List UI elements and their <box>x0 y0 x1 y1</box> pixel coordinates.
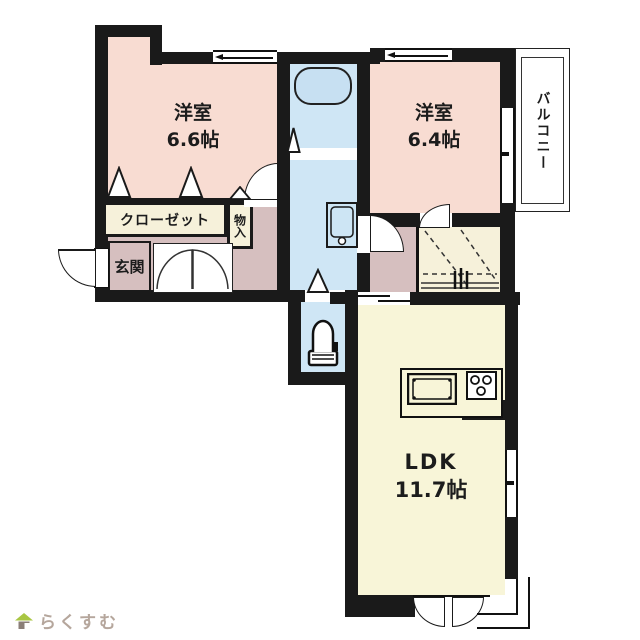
site-logo: らくすむ <box>14 608 119 633</box>
wall-segment <box>505 295 518 452</box>
entrance-door-panel <box>94 248 109 288</box>
terrace-threshold <box>413 595 490 597</box>
hallway-floor <box>253 205 277 237</box>
washbasin-icon <box>326 202 358 248</box>
wall-segment <box>345 290 358 617</box>
wall-segment <box>357 52 370 305</box>
entrance: 玄関 <box>108 241 151 292</box>
terrace-outline <box>477 613 518 615</box>
storage-door-mark-icon <box>228 186 252 201</box>
wall-segment <box>345 595 415 617</box>
storage: 物入 <box>227 202 253 249</box>
window-arrow-icon <box>387 52 395 58</box>
ldk-sliding-door <box>358 292 410 305</box>
room-area: 6.4帖 <box>368 127 500 154</box>
hatch-lines-icon <box>419 227 502 294</box>
room-name: 洋室 <box>110 100 276 127</box>
balcony-label: バルコニー <box>533 91 553 171</box>
double-door-arc-icon <box>154 244 231 291</box>
window <box>505 450 518 517</box>
wall-segment <box>410 292 520 305</box>
terrace-outline <box>477 627 530 629</box>
storage-label: 物入 <box>232 214 249 238</box>
shoe-cabinet <box>153 243 233 293</box>
entrance-door-arc <box>58 249 96 287</box>
closet: クローゼット <box>103 202 227 237</box>
bedroom1-label: 洋室 6.6帖 <box>110 100 276 153</box>
house-logo-icon <box>14 612 34 630</box>
closet-door-mark-icon <box>178 166 204 199</box>
balcony-inner: バルコニー <box>521 57 564 204</box>
wall-segment <box>505 517 518 579</box>
refrigerator-space <box>416 227 502 294</box>
closet-label: クローゼット <box>120 210 210 230</box>
bedroom2-label: 洋室 6.4帖 <box>368 100 500 153</box>
window <box>385 48 452 62</box>
room-name: 洋室 <box>368 100 500 127</box>
terrace-outline <box>528 577 530 629</box>
bathroom-door-mark-icon <box>286 126 301 154</box>
room-name: LDK <box>358 448 504 476</box>
room-area: 11.7帖 <box>358 476 504 504</box>
wall-segment <box>277 52 290 290</box>
closet-door-mark-icon <box>106 166 132 199</box>
terrace-outline <box>516 579 518 615</box>
balcony-window <box>500 108 515 203</box>
kitchen-sink-icon <box>407 373 457 405</box>
floorplan-canvas: バルコニー クローゼット 物入 玄関 <box>0 0 640 640</box>
wall-segment <box>288 290 301 385</box>
toilet-icon <box>306 314 340 368</box>
entrance-label: 玄関 <box>114 256 144 277</box>
door-opening <box>357 216 370 253</box>
ldk-label: LDK 11.7帖 <box>358 448 504 505</box>
terrace-door-arc <box>452 597 484 627</box>
terrace-door-arc <box>413 597 445 627</box>
stove-icon <box>466 371 497 400</box>
toilet-door-mark-icon <box>306 268 330 294</box>
bathtub-icon <box>294 67 352 105</box>
room-area: 6.6帖 <box>110 127 276 154</box>
logo-text: らくすむ <box>39 608 119 633</box>
window <box>213 50 277 64</box>
window-arrow-icon <box>215 54 223 60</box>
